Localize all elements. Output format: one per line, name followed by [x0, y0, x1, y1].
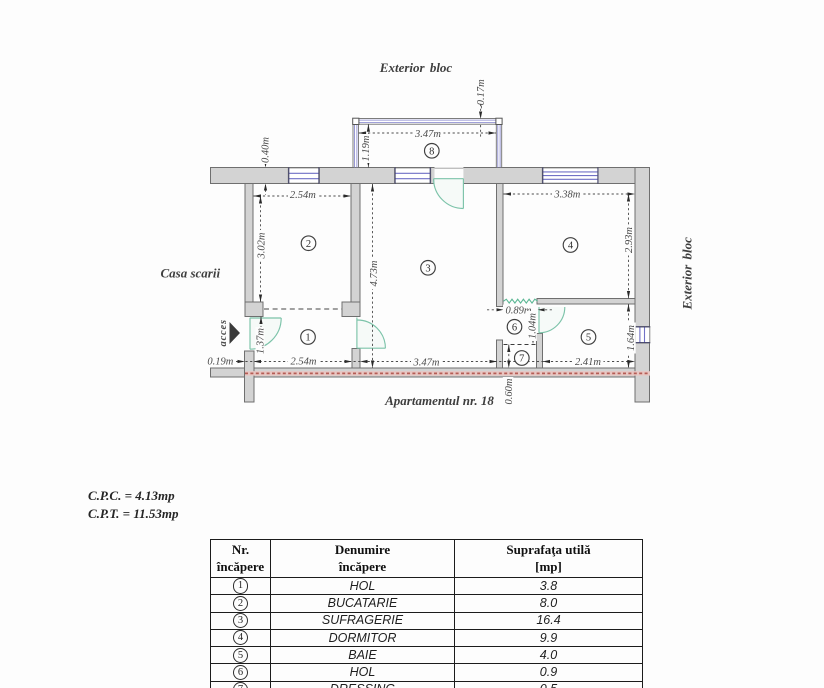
svg-text:3: 3	[425, 264, 430, 275]
svg-text:Casa scarii: Casa scarii	[161, 266, 221, 281]
svg-text:2.54m: 2.54m	[290, 190, 316, 201]
svg-text:6: 6	[512, 323, 517, 334]
svg-text:1.04m: 1.04m	[527, 313, 538, 339]
svg-text:7: 7	[519, 354, 524, 365]
svg-text:0.19m: 0.19m	[207, 357, 233, 368]
svg-text:8: 8	[429, 147, 434, 158]
svg-text:acces: acces	[218, 319, 229, 346]
svg-text:4: 4	[568, 241, 574, 252]
svg-text:5: 5	[586, 333, 591, 344]
svg-text:0.40m: 0.40m	[261, 137, 272, 163]
svg-text:1.19m: 1.19m	[361, 135, 372, 161]
svg-text:1.37m: 1.37m	[256, 328, 267, 354]
svg-text:Exterior bloc: Exterior bloc	[379, 60, 453, 75]
svg-text:3.02m: 3.02m	[257, 232, 268, 259]
svg-text:1: 1	[305, 333, 310, 344]
svg-text:2.41m: 2.41m	[575, 357, 601, 368]
svg-text:0.60m: 0.60m	[504, 378, 515, 404]
svg-text:2: 2	[306, 239, 311, 250]
svg-text:3.38m: 3.38m	[553, 190, 580, 201]
svg-text:Exterior bloc: Exterior bloc	[679, 237, 694, 311]
svg-text:-0.17m: -0.17m	[476, 79, 487, 109]
svg-text:4.73m: 4.73m	[369, 260, 380, 286]
svg-text:2.93m: 2.93m	[624, 227, 635, 253]
svg-text:Apartamentul nr. 18: Apartamentul nr. 18	[384, 393, 494, 408]
svg-text:3.47m: 3.47m	[414, 129, 441, 140]
svg-text:2.54m: 2.54m	[291, 357, 317, 368]
svg-text:1.64m: 1.64m	[626, 325, 637, 351]
svg-text:3.47m: 3.47m	[413, 358, 440, 369]
